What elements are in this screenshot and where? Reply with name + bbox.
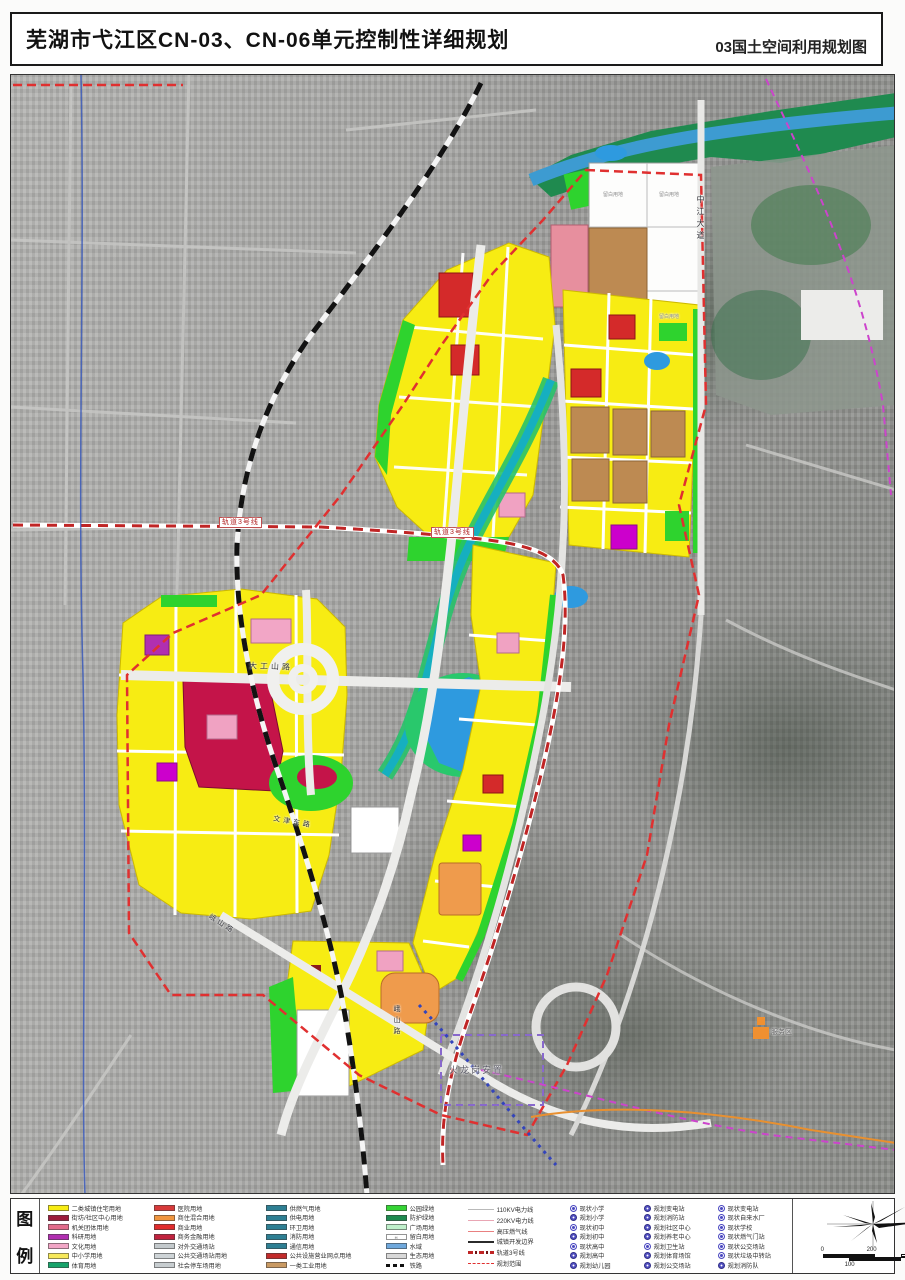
compass-rose <box>821 1201 905 1247</box>
legend-label: 现状高中 <box>580 1242 605 1251</box>
legend-label: 科研用地 <box>72 1232 97 1241</box>
scale-tick: 100 <box>845 1262 855 1268</box>
place-label-service-area: 服务区 <box>771 1027 792 1037</box>
legend-item: 二类城镇住宅用地 <box>48 1204 150 1212</box>
metro-line-label: 轨道3号线 <box>431 527 474 538</box>
legend-facility-column: 规划变电站规划消防站规划社区中心规划养老中心规划卫生站规划体育场馆规划公交场站 <box>644 1204 714 1269</box>
legend-label: 现状燃气门站 <box>728 1232 765 1241</box>
scale-tick: 200 <box>867 1247 877 1253</box>
legend-swatch <box>48 1205 69 1211</box>
legend-facility-item: 现状垃圾中转站 <box>718 1252 788 1260</box>
map-canvas <box>11 75 895 1194</box>
legend-label: 街坊/社区中心用地 <box>72 1213 123 1222</box>
legend-label: 规划幼儿园 <box>580 1261 611 1270</box>
legend-item: 通信用地 <box>266 1242 382 1250</box>
legend-label: 110KV电力线 <box>497 1205 534 1214</box>
planned-facility-icon <box>644 1214 651 1221</box>
legend-label: 商住混合用地 <box>178 1213 215 1222</box>
legend-swatch <box>154 1224 175 1230</box>
legend-item: 防护绿地 <box>386 1214 464 1222</box>
legend-label: 机关团体用地 <box>72 1223 109 1232</box>
planned-facility-icon <box>644 1224 651 1231</box>
parcel-label-reserved: 留白用地 <box>603 191 623 198</box>
legend-line-swatch <box>468 1220 494 1221</box>
legend-swatch <box>266 1234 287 1240</box>
legend-facility-item: 规划小学 <box>570 1214 640 1222</box>
legend-label: 220KV电力线 <box>497 1216 534 1225</box>
legend-swatch <box>386 1215 407 1221</box>
legend-line-swatch <box>468 1231 494 1232</box>
legend-landuse-column: 公园绿地防护绿地广场用地H留白用地水域生态用地铁路 <box>386 1204 464 1269</box>
planned-facility-icon <box>570 1252 577 1259</box>
legend-label: 规划变电站 <box>654 1204 685 1213</box>
legend-facility-item: 规划卫生站 <box>644 1242 714 1250</box>
existing-facility-icon <box>570 1243 577 1250</box>
legend-label: 规划消防站 <box>654 1213 685 1222</box>
legend-heading: 图 例 <box>11 1199 40 1273</box>
legend-facility-item: 现状学校 <box>718 1223 788 1231</box>
legend-label: 现状小学 <box>580 1204 605 1213</box>
existing-facility-icon <box>718 1224 725 1231</box>
legend-label: 消防用地 <box>290 1232 315 1241</box>
plan-sheet: 芜湖市弋江区CN-03、CN-06单元控制性详细规划 03国土空间利用规划图 <box>0 0 905 1280</box>
legend-label: 规划公交场站 <box>654 1261 691 1270</box>
legend-label: 公共设施营业网点用地 <box>290 1251 352 1260</box>
legend-label: 供燃气用地 <box>290 1204 321 1213</box>
legend-label: 现状公交场站 <box>728 1242 765 1251</box>
legend-swatch <box>266 1253 287 1259</box>
title-bar: 芜湖市弋江区CN-03、CN-06单元控制性详细规划 03国土空间利用规划图 <box>10 12 883 66</box>
planned-facility-icon <box>570 1214 577 1221</box>
legend-swatch <box>386 1253 407 1259</box>
existing-facility-icon <box>718 1233 725 1240</box>
legend-item: 中小学用地 <box>48 1252 150 1260</box>
legend-facility-item: 规划初中 <box>570 1233 640 1241</box>
legend-label: 规划范围 <box>497 1259 522 1268</box>
legend-facility-item: 规划养老中心 <box>644 1233 714 1241</box>
legend-item: 供燃气用地 <box>266 1204 382 1212</box>
planned-facility-icon <box>644 1262 651 1269</box>
legend-facility-item: 现状变电站 <box>718 1204 788 1212</box>
legend-item: 商业用地 <box>154 1223 262 1231</box>
legend-item: 街坊/社区中心用地 <box>48 1214 150 1222</box>
west-residential-block <box>117 589 353 919</box>
legend-label: 文化用地 <box>72 1242 97 1251</box>
legend-swatch <box>386 1224 407 1230</box>
legend-swatch <box>266 1215 287 1221</box>
legend-lines-column: 110KV电力线220KV电力线高压燃气线城镇开发边界轨道3号线规划范围 <box>468 1204 556 1269</box>
legend-item: 公共设施营业网点用地 <box>266 1252 382 1260</box>
legend-item: H留白用地 <box>386 1233 464 1241</box>
legend-facility-item: 现状高中 <box>570 1242 640 1250</box>
legend-item: 商务金融用地 <box>154 1233 262 1241</box>
legend-landuse-column: 医院用地商住混合用地商业用地商务金融用地对外交通场站公共交通场站用地社会停车场用… <box>154 1204 262 1269</box>
legend-item: 生态用地 <box>386 1252 464 1260</box>
legend-facility-item: 规划体育场馆 <box>644 1252 714 1260</box>
legend-line-swatch <box>468 1209 494 1210</box>
legend-label: 商务金融用地 <box>178 1232 215 1241</box>
legend-facility-item: 规划变电站 <box>644 1204 714 1212</box>
existing-facility-icon <box>718 1205 725 1212</box>
legend-item: 一类工业用地 <box>266 1261 382 1269</box>
legend-swatch <box>48 1234 69 1240</box>
legend-label: 规划高中 <box>580 1251 605 1260</box>
legend-label: 现状学校 <box>728 1223 753 1232</box>
scale-bar: 0 200 100 400M <box>805 1247 905 1269</box>
legend-item: 对外交通场站 <box>154 1242 262 1250</box>
legend: 图 例 二类城镇住宅用地街坊/社区中心用地机关团体用地科研用地文化用地中小学用地… <box>10 1198 895 1274</box>
road-label-eshan-2: 峨山路 <box>391 1005 401 1038</box>
planned-facility-icon <box>644 1233 651 1240</box>
legend-label: 通信用地 <box>290 1242 315 1251</box>
metro-line-label: 轨道3号线 <box>219 517 262 528</box>
legend-label: 规划初中 <box>580 1232 605 1241</box>
legend-label: 城镇开发边界 <box>497 1237 534 1246</box>
legend-body: 二类城镇住宅用地街坊/社区中心用地机关团体用地科研用地文化用地中小学用地体育用地… <box>40 1199 792 1273</box>
legend-label: 社会停车场用地 <box>178 1261 221 1270</box>
legend-swatch <box>266 1243 287 1249</box>
service-area-marker <box>753 1017 769 1039</box>
legend-swatch <box>48 1215 69 1221</box>
legend-facility-item: 现状自来水厂 <box>718 1214 788 1222</box>
legend-label: 生态用地 <box>410 1251 435 1260</box>
legend-swatch <box>154 1205 175 1211</box>
legend-label: 医院用地 <box>178 1204 203 1213</box>
planned-facility-icon <box>570 1233 577 1240</box>
planned-facility-icon <box>644 1205 651 1212</box>
legend-label: 供电用地 <box>290 1213 315 1222</box>
legend-line-item: 110KV电力线 <box>468 1205 556 1213</box>
legend-landuse-column: 二类城镇住宅用地街坊/社区中心用地机关团体用地科研用地文化用地中小学用地体育用地 <box>48 1204 150 1269</box>
legend-label: 公园绿地 <box>410 1204 435 1213</box>
legend-item: 公共交通场站用地 <box>154 1252 262 1260</box>
legend-label: 中小学用地 <box>72 1251 103 1260</box>
legend-line-item: 规划范围 <box>468 1260 556 1268</box>
legend-label: 高压燃气线 <box>497 1227 528 1236</box>
legend-line-item: 城镇开发边界 <box>468 1238 556 1246</box>
legend-facility-item: 规划消防站 <box>644 1214 714 1222</box>
legend-label: 防护绿地 <box>410 1213 435 1222</box>
existing-facility-icon <box>570 1224 577 1231</box>
legend-swatch <box>266 1205 287 1211</box>
legend-label: 公共交通场站用地 <box>178 1251 228 1260</box>
legend-item: 文化用地 <box>48 1242 150 1250</box>
legend-facility-column: 现状变电站现状自来水厂现状学校现状燃气门站现状公交场站现状垃圾中转站规划消防队 <box>718 1204 788 1269</box>
legend-item: 体育用地 <box>48 1261 150 1269</box>
legend-item: 商住混合用地 <box>154 1214 262 1222</box>
legend-label: 现状自来水厂 <box>728 1213 765 1222</box>
legend-facility-item: 规划幼儿园 <box>570 1261 640 1269</box>
legend-swatch <box>154 1215 175 1221</box>
legend-landuse-column: 供燃气用地供电用地环卫用地消防用地通信用地公共设施营业网点用地一类工业用地 <box>266 1204 382 1269</box>
legend-label: 规划卫生站 <box>654 1242 685 1251</box>
page-subtitle: 03国土空间利用规划图 <box>715 36 867 57</box>
scale-tick: 0 <box>821 1247 824 1253</box>
legend-swatch <box>154 1253 175 1259</box>
legend-label: 二类城镇住宅用地 <box>72 1204 122 1213</box>
legend-line-item: 220KV电力线 <box>468 1216 556 1224</box>
planned-facility-icon <box>644 1252 651 1259</box>
legend-item: 消防用地 <box>266 1233 382 1241</box>
legend-label: 轨道3号线 <box>497 1248 525 1257</box>
legend-item: 科研用地 <box>48 1233 150 1241</box>
legend-label: 规划体育场馆 <box>654 1251 691 1260</box>
topright-park <box>711 145 895 415</box>
legend-line-swatch <box>468 1241 494 1243</box>
legend-swatch <box>154 1262 175 1268</box>
legend-swatch <box>386 1243 407 1249</box>
legend-item: 供电用地 <box>266 1214 382 1222</box>
legend-swatch <box>266 1262 287 1268</box>
legend-label: 现状垃圾中转站 <box>728 1251 771 1260</box>
legend-label: 水域 <box>410 1242 422 1251</box>
legend-label: 铁路 <box>410 1261 422 1270</box>
legend-map-tools: 0 200 100 400M <box>792 1199 894 1273</box>
legend-label: 广场用地 <box>410 1223 435 1232</box>
legend-heading-char: 例 <box>16 1242 33 1267</box>
legend-label: 规划消防队 <box>728 1261 759 1270</box>
existing-facility-icon <box>570 1205 577 1212</box>
legend-item: 铁路 <box>386 1261 464 1269</box>
legend-line-item: 轨道3号线 <box>468 1249 556 1257</box>
legend-label: 现状变电站 <box>728 1204 759 1213</box>
legend-swatch <box>386 1205 407 1211</box>
legend-facility-item: 规划消防队 <box>718 1261 788 1269</box>
legend-item: 水域 <box>386 1242 464 1250</box>
road-label-zhongjiang: 中江大道 <box>695 195 706 243</box>
legend-swatch <box>386 1264 407 1267</box>
existing-facility-icon <box>718 1252 725 1259</box>
road-label-dagongshan: 大工山路 <box>249 660 293 673</box>
legend-swatch <box>48 1224 69 1230</box>
legend-item: 环卫用地 <box>266 1223 382 1231</box>
legend-line-item: 高压燃气线 <box>468 1227 556 1235</box>
legend-label: 体育用地 <box>72 1261 97 1270</box>
legend-item: 公园绿地 <box>386 1204 464 1212</box>
planned-facility-icon <box>570 1262 577 1269</box>
existing-facility-icon <box>718 1214 725 1221</box>
legend-label: 商业用地 <box>178 1223 203 1232</box>
east-grid-band <box>560 290 702 557</box>
legend-swatch <box>48 1262 69 1268</box>
legend-item: 机关团体用地 <box>48 1223 150 1231</box>
page-title: 芜湖市弋江区CN-03、CN-06单元控制性详细规划 <box>26 24 509 54</box>
legend-facility-item: 规划公交场站 <box>644 1261 714 1269</box>
parcel-label-reserved: 留白用地 <box>659 191 679 198</box>
legend-facility-item: 现状小学 <box>570 1204 640 1212</box>
legend-item: 社会停车场用地 <box>154 1261 262 1269</box>
legend-label: 对外交通场站 <box>178 1242 215 1251</box>
legend-swatch <box>154 1243 175 1249</box>
legend-heading-char: 图 <box>16 1205 33 1230</box>
legend-line-swatch <box>468 1251 494 1254</box>
parcel-label-reserved: 留白用地 <box>659 313 679 320</box>
legend-label: 留白用地 <box>410 1232 435 1241</box>
legend-facility-item: 规划社区中心 <box>644 1223 714 1231</box>
legend-label: 现状初中 <box>580 1223 605 1232</box>
legend-label: 规划社区中心 <box>654 1223 691 1232</box>
legend-label: 规划养老中心 <box>654 1232 691 1241</box>
legend-label: 规划小学 <box>580 1213 605 1222</box>
legend-swatch <box>48 1253 69 1259</box>
legend-line-swatch <box>468 1263 494 1264</box>
legend-swatch: H <box>386 1234 407 1240</box>
legend-facility-item: 现状公交场站 <box>718 1242 788 1250</box>
existing-facility-icon <box>644 1243 651 1250</box>
legend-facility-column: 现状小学规划小学现状初中规划初中现状高中规划高中规划幼儿园 <box>570 1204 640 1269</box>
legend-swatch <box>266 1224 287 1230</box>
planned-facility-icon <box>718 1262 725 1269</box>
legend-item: 医院用地 <box>154 1204 262 1212</box>
existing-facility-icon <box>718 1243 725 1250</box>
place-label-huolonggang: 火龙岗安置 <box>449 1063 504 1076</box>
legend-facility-item: 规划高中 <box>570 1252 640 1260</box>
legend-item: 广场用地 <box>386 1223 464 1231</box>
legend-facility-item: 现状燃气门站 <box>718 1233 788 1241</box>
planning-map: 轨道3号线 轨道3号线 大工山路 文津东路 峨山路 峨山路 中江大道 留白用地 … <box>10 74 895 1194</box>
legend-label: 一类工业用地 <box>290 1261 327 1270</box>
legend-facility-item: 现状初中 <box>570 1223 640 1231</box>
legend-label: 环卫用地 <box>290 1223 315 1232</box>
legend-swatch <box>154 1234 175 1240</box>
legend-swatch <box>48 1243 69 1249</box>
